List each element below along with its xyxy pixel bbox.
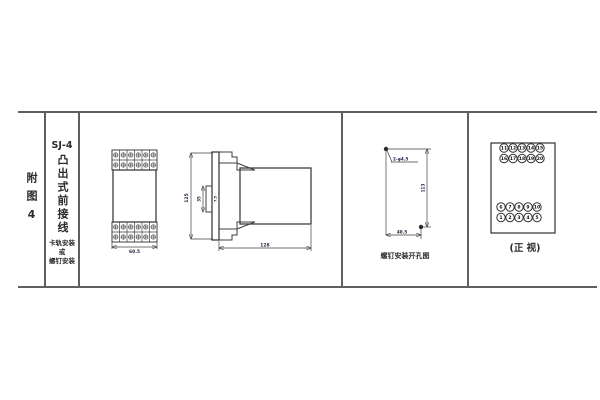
divider-2 bbox=[78, 111, 80, 288]
terminal-3: 3 bbox=[515, 213, 523, 221]
svg-text:12: 12 bbox=[510, 146, 516, 152]
terminal-15: 15 bbox=[536, 144, 544, 152]
vertical-dim-label: 113 bbox=[421, 184, 426, 193]
drawing-page: 附图4 SJ-4 凸出式前接线 卡轨安装 或 螺钉安装 bbox=[0, 0, 600, 400]
figure-index-label: 附图4 bbox=[23, 172, 39, 228]
front-view-drawing: 60.5 bbox=[105, 144, 167, 256]
divider-4 bbox=[467, 111, 469, 288]
din-rail-slot bbox=[206, 186, 212, 212]
svg-text:4: 4 bbox=[526, 215, 529, 221]
rail-slot-dim-label: 35 bbox=[197, 196, 202, 202]
front-width-dim-label: 60.5 bbox=[129, 249, 140, 255]
terminal-view-caption: (正 视) bbox=[483, 240, 567, 254]
terminal-5: 5 bbox=[533, 213, 541, 221]
mount-hole-bottom bbox=[419, 225, 423, 229]
terminal-7: 7 bbox=[506, 203, 514, 211]
side-height-dimension: 125 bbox=[184, 153, 213, 239]
svg-text:10: 10 bbox=[534, 205, 540, 211]
svg-text:3: 3 bbox=[517, 215, 520, 221]
terminal-16: 16 bbox=[500, 154, 508, 162]
svg-text:5: 5 bbox=[535, 215, 538, 221]
svg-text:13: 13 bbox=[519, 146, 525, 152]
horizontal-dim-label: 48.5 bbox=[397, 230, 407, 235]
side-depth-dim-label: 128 bbox=[260, 243, 269, 249]
svg-text:20: 20 bbox=[537, 156, 543, 162]
terminal-strip-top bbox=[112, 150, 157, 170]
side-case-profile bbox=[219, 152, 311, 240]
mounting-note-line-1: 卡轨安装 bbox=[49, 239, 75, 248]
model-label: SJ-4 bbox=[52, 140, 73, 151]
svg-text:17: 17 bbox=[510, 156, 516, 162]
terminal-strip-bottom bbox=[112, 222, 157, 242]
terminal-17: 17 bbox=[509, 154, 517, 162]
slot-depth-dim-label: 7.5 bbox=[214, 195, 218, 202]
holes-label: 2-φ4.5 bbox=[393, 157, 408, 162]
svg-text:19: 19 bbox=[528, 156, 534, 162]
svg-text:14: 14 bbox=[528, 146, 534, 152]
terminal-8: 8 bbox=[515, 203, 523, 211]
side-view-drawing: 125 35 7.5 128 bbox=[180, 140, 320, 255]
svg-text:2: 2 bbox=[508, 215, 511, 221]
front-width-dimension: 60.5 bbox=[112, 242, 157, 255]
terminal-1: 1 bbox=[497, 213, 505, 221]
svg-text:7: 7 bbox=[508, 205, 511, 211]
mounting-note-line-2: 或 bbox=[49, 248, 75, 257]
svg-text:16: 16 bbox=[501, 156, 507, 162]
terminal-14: 14 bbox=[527, 144, 535, 152]
terminal-12: 12 bbox=[509, 144, 517, 152]
mount-hole-top bbox=[384, 147, 388, 151]
svg-text:1: 1 bbox=[499, 215, 502, 221]
side-height-dim-label: 125 bbox=[184, 193, 190, 202]
figure-index-column: 附图4 bbox=[18, 111, 44, 288]
holes-callout: 2-φ4.5 bbox=[387, 151, 418, 163]
front-view-body bbox=[113, 170, 156, 222]
band-bottom-rule bbox=[18, 286, 597, 288]
terminal-face-view: 11 12 13 14 15 16 17 18 19 20 6 7 8 9 10… bbox=[483, 138, 567, 238]
svg-text:18: 18 bbox=[519, 156, 525, 162]
mounting-note-line-3: 螺钉安装 bbox=[49, 257, 75, 266]
terminal-11: 11 bbox=[500, 144, 508, 152]
terminal-19: 19 bbox=[527, 154, 535, 162]
svg-text:9: 9 bbox=[526, 205, 529, 211]
svg-text:11: 11 bbox=[501, 146, 507, 152]
svg-text:6: 6 bbox=[499, 205, 502, 211]
terminal-9: 9 bbox=[524, 203, 532, 211]
drilling-diagram-caption: 螺钉安装开孔图 bbox=[342, 251, 468, 261]
terminal-4: 4 bbox=[524, 213, 532, 221]
drilling-diagram: 2-φ4.5 113 48.5 bbox=[360, 140, 450, 248]
horizontal-spacing-dimension: 48.5 bbox=[386, 229, 421, 239]
svg-text:8: 8 bbox=[517, 205, 520, 211]
rail-slot-dimension: 35 7.5 bbox=[197, 186, 218, 212]
svg-text:15: 15 bbox=[537, 146, 543, 152]
terminal-20: 20 bbox=[536, 154, 544, 162]
band-top-rule bbox=[18, 111, 597, 113]
terminal-2: 2 bbox=[506, 213, 514, 221]
figure-title-column: SJ-4 凸出式前接线 卡轨安装 或 螺钉安装 bbox=[46, 111, 78, 288]
terminal-18: 18 bbox=[518, 154, 526, 162]
figure-title-vertical: 凸出式前接线 bbox=[54, 154, 70, 235]
terminal-13: 13 bbox=[518, 144, 526, 152]
terminal-6: 6 bbox=[497, 203, 505, 211]
divider-3 bbox=[341, 111, 343, 288]
terminal-10: 10 bbox=[533, 203, 541, 211]
